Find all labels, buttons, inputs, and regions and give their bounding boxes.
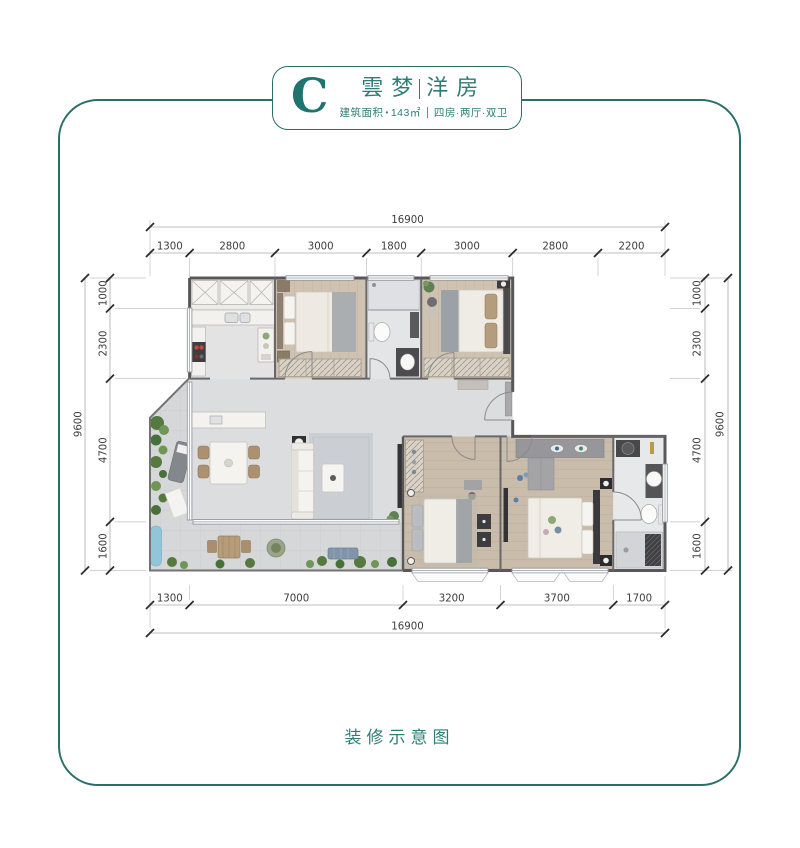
- desk: [464, 480, 482, 490]
- title-divider: [419, 79, 420, 99]
- layout-value: 四房·两厅·双卫: [434, 105, 508, 120]
- dim-label: 2300: [693, 331, 704, 357]
- dim-label: 2800: [219, 242, 245, 253]
- dim-label: 1700: [626, 594, 652, 605]
- area-dot: •: [386, 108, 389, 117]
- dim-label: 2200: [619, 242, 645, 253]
- dim-label: 1300: [157, 242, 183, 253]
- spec-divider: [427, 107, 428, 118]
- wardrobe: [406, 440, 424, 492]
- dim-label: 16900: [391, 622, 423, 633]
- dim-label: 3700: [544, 594, 570, 605]
- dim-label: 4700: [99, 437, 110, 463]
- dim-label: 3200: [439, 594, 465, 605]
- dim-label: 1000: [99, 280, 110, 306]
- area-value: 143㎡: [391, 105, 421, 120]
- bench: [328, 548, 358, 559]
- tv-panel: [504, 488, 509, 542]
- bed: [424, 499, 458, 563]
- unit-badge: C 雲梦 洋房 建筑面积 • 143㎡ 四房·两厅·双卫: [272, 66, 522, 130]
- dim-label: 4700: [693, 437, 704, 463]
- entry-cabinets: [192, 281, 273, 305]
- bed: [528, 498, 582, 558]
- dim-label: 1300: [157, 594, 183, 605]
- toilet: [374, 323, 390, 342]
- unit-specs: 建筑面积 • 143㎡ 四房·两厅·双卫: [340, 105, 508, 120]
- dim-label: 1600: [99, 533, 110, 559]
- floor-plan: 16900 1300 2800 3000 1800 3000 2800 2200…: [60, 190, 740, 670]
- dim-label: 16900: [391, 215, 423, 226]
- dim-label: 2300: [99, 331, 110, 357]
- dim-label: 7000: [283, 594, 309, 605]
- project-title-right: 洋房: [426, 76, 486, 100]
- dim-label: 1800: [381, 242, 407, 253]
- plan-caption: 装修示意图: [58, 723, 741, 748]
- dim-label: 9600: [74, 411, 85, 437]
- dim-label: 3000: [454, 242, 480, 253]
- stove: [192, 342, 206, 362]
- dim-label: 2800: [542, 242, 568, 253]
- dim-label: 1000: [693, 280, 704, 306]
- project-title-left: 雲梦: [361, 76, 421, 100]
- wardrobe: [424, 358, 509, 377]
- shower: [368, 280, 419, 310]
- tv-panel: [398, 444, 403, 508]
- island-counter: [192, 412, 266, 428]
- sink: [401, 354, 415, 370]
- bay-windows: [412, 573, 608, 582]
- sink: [647, 472, 662, 487]
- pond: [151, 526, 162, 566]
- floorplan-card: C 雲梦 洋房 建筑面积 • 143㎡ 四房·两厅·双卫: [0, 0, 800, 848]
- dim-label: 9600: [716, 411, 727, 437]
- dim-label: 1600: [693, 533, 704, 559]
- area-label: 建筑面积: [340, 105, 384, 120]
- unit-type-letter: C: [291, 73, 328, 120]
- toilet: [641, 505, 657, 524]
- dim-label: 3000: [308, 242, 334, 253]
- project-title: 雲梦 洋房: [361, 76, 486, 100]
